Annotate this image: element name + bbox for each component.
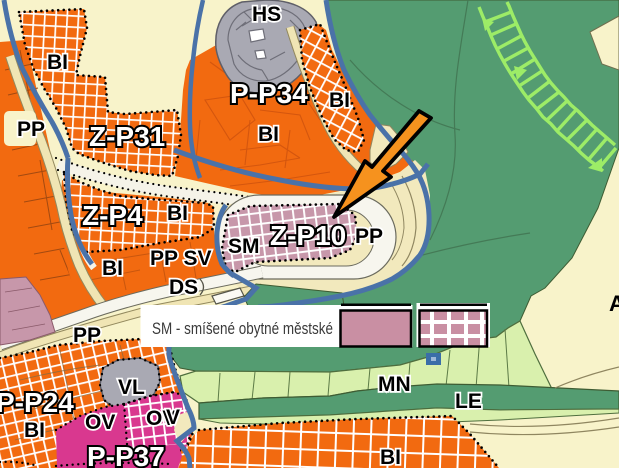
svg-text:MN: MN [378,373,411,396]
svg-text:HS: HS [252,3,281,26]
svg-text:LE: LE [455,390,482,413]
svg-text:P-P37: P-P37 [87,441,165,468]
svg-text:P-P24: P-P24 [0,387,74,418]
svg-text:BI: BI [380,446,401,468]
svg-text:BI: BI [102,257,123,280]
svg-text:SM - smíšené obytné městské: SM - smíšené obytné městské [152,320,333,338]
svg-text:BI: BI [24,419,45,442]
svg-text:BI: BI [47,51,68,74]
svg-text:A: A [609,291,619,316]
svg-text:Z-P31: Z-P31 [89,121,165,152]
svg-text:Z-P4: Z-P4 [82,200,143,231]
svg-text:PP: PP [355,225,383,248]
svg-text:V: V [166,406,180,429]
svg-text:BI: BI [167,202,188,225]
svg-text:P-P34: P-P34 [230,78,308,109]
svg-text:BI: BI [329,89,350,112]
svg-text:Z-P10: Z-P10 [270,220,346,251]
svg-text:DS: DS [169,276,198,299]
svg-text:OV: OV [85,411,115,434]
svg-text:VL: VL [118,376,145,399]
svg-text:PP: PP [17,118,45,141]
svg-text:PP SV: PP SV [150,247,211,270]
svg-text:PP: PP [73,324,101,347]
svg-text:BI: BI [258,123,279,146]
svg-text:SM: SM [228,235,260,258]
